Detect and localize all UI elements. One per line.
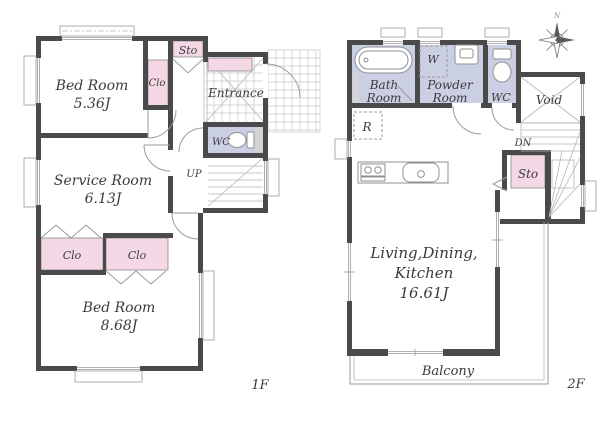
area-label-ldk: 16.61J	[400, 284, 450, 302]
label-wc-2f: WC	[491, 91, 511, 104]
floor-plan-page: Bed Room 5.36J Clo Sto Entrance WC UP Se…	[0, 0, 600, 422]
label-wc-1f: WC	[212, 137, 230, 148]
room-label-powder-2: Room	[432, 91, 468, 105]
room-label-ldk-2: Kitchen	[394, 264, 454, 282]
toilet-icon-1f	[228, 132, 254, 148]
area-label-bedroom2: 8.68J	[101, 318, 139, 334]
washbasin-icon	[455, 45, 478, 64]
label-void: Void	[536, 93, 563, 107]
bathtub-icon	[355, 47, 412, 73]
room-label-ldk-1: Living,Dining,	[369, 244, 477, 262]
room-label-bedroom2: Bed Room	[82, 300, 156, 316]
room-label-bath-2: Room	[366, 91, 402, 105]
label-stairs-down: DN	[514, 138, 533, 149]
label-balcony: Balcony	[421, 364, 475, 379]
floor-label-1f: 1F	[251, 378, 269, 393]
room-label-service: Service Room	[54, 173, 152, 189]
label-closet-right: Clo	[128, 249, 147, 262]
room-label-bedroom1: Bed Room	[55, 78, 129, 94]
toilet-icon-2f	[493, 49, 511, 82]
floor-plan-drawing: Bed Room 5.36J Clo Sto Entrance WC UP Se…	[0, 0, 600, 422]
kitchen-counter	[358, 162, 448, 183]
shoe-cabinet-fill	[208, 58, 252, 71]
label-storage-2f: Sto	[518, 167, 538, 181]
bath-washplace	[353, 72, 359, 103]
floor-label-2f: 2F	[566, 377, 585, 392]
label-storage-1f: Sto	[179, 44, 198, 57]
label-closet-bedroom1: Clo	[149, 78, 166, 89]
compass-north-label: N	[553, 12, 561, 20]
room-label-bath-1: Bath	[369, 78, 399, 92]
area-label-service: 6.13J	[85, 191, 123, 207]
wc-1f-basin	[255, 128, 263, 152]
area-label-bedroom1: 5.36J	[74, 96, 112, 112]
label-closet-left: Clo	[63, 249, 82, 262]
label-entrance: Entrance	[207, 86, 264, 100]
label-refrigerator: R	[361, 120, 371, 134]
label-washer: W	[427, 53, 440, 66]
label-stairs-up: UP	[186, 169, 201, 180]
room-label-powder-1: Powder	[426, 78, 474, 92]
